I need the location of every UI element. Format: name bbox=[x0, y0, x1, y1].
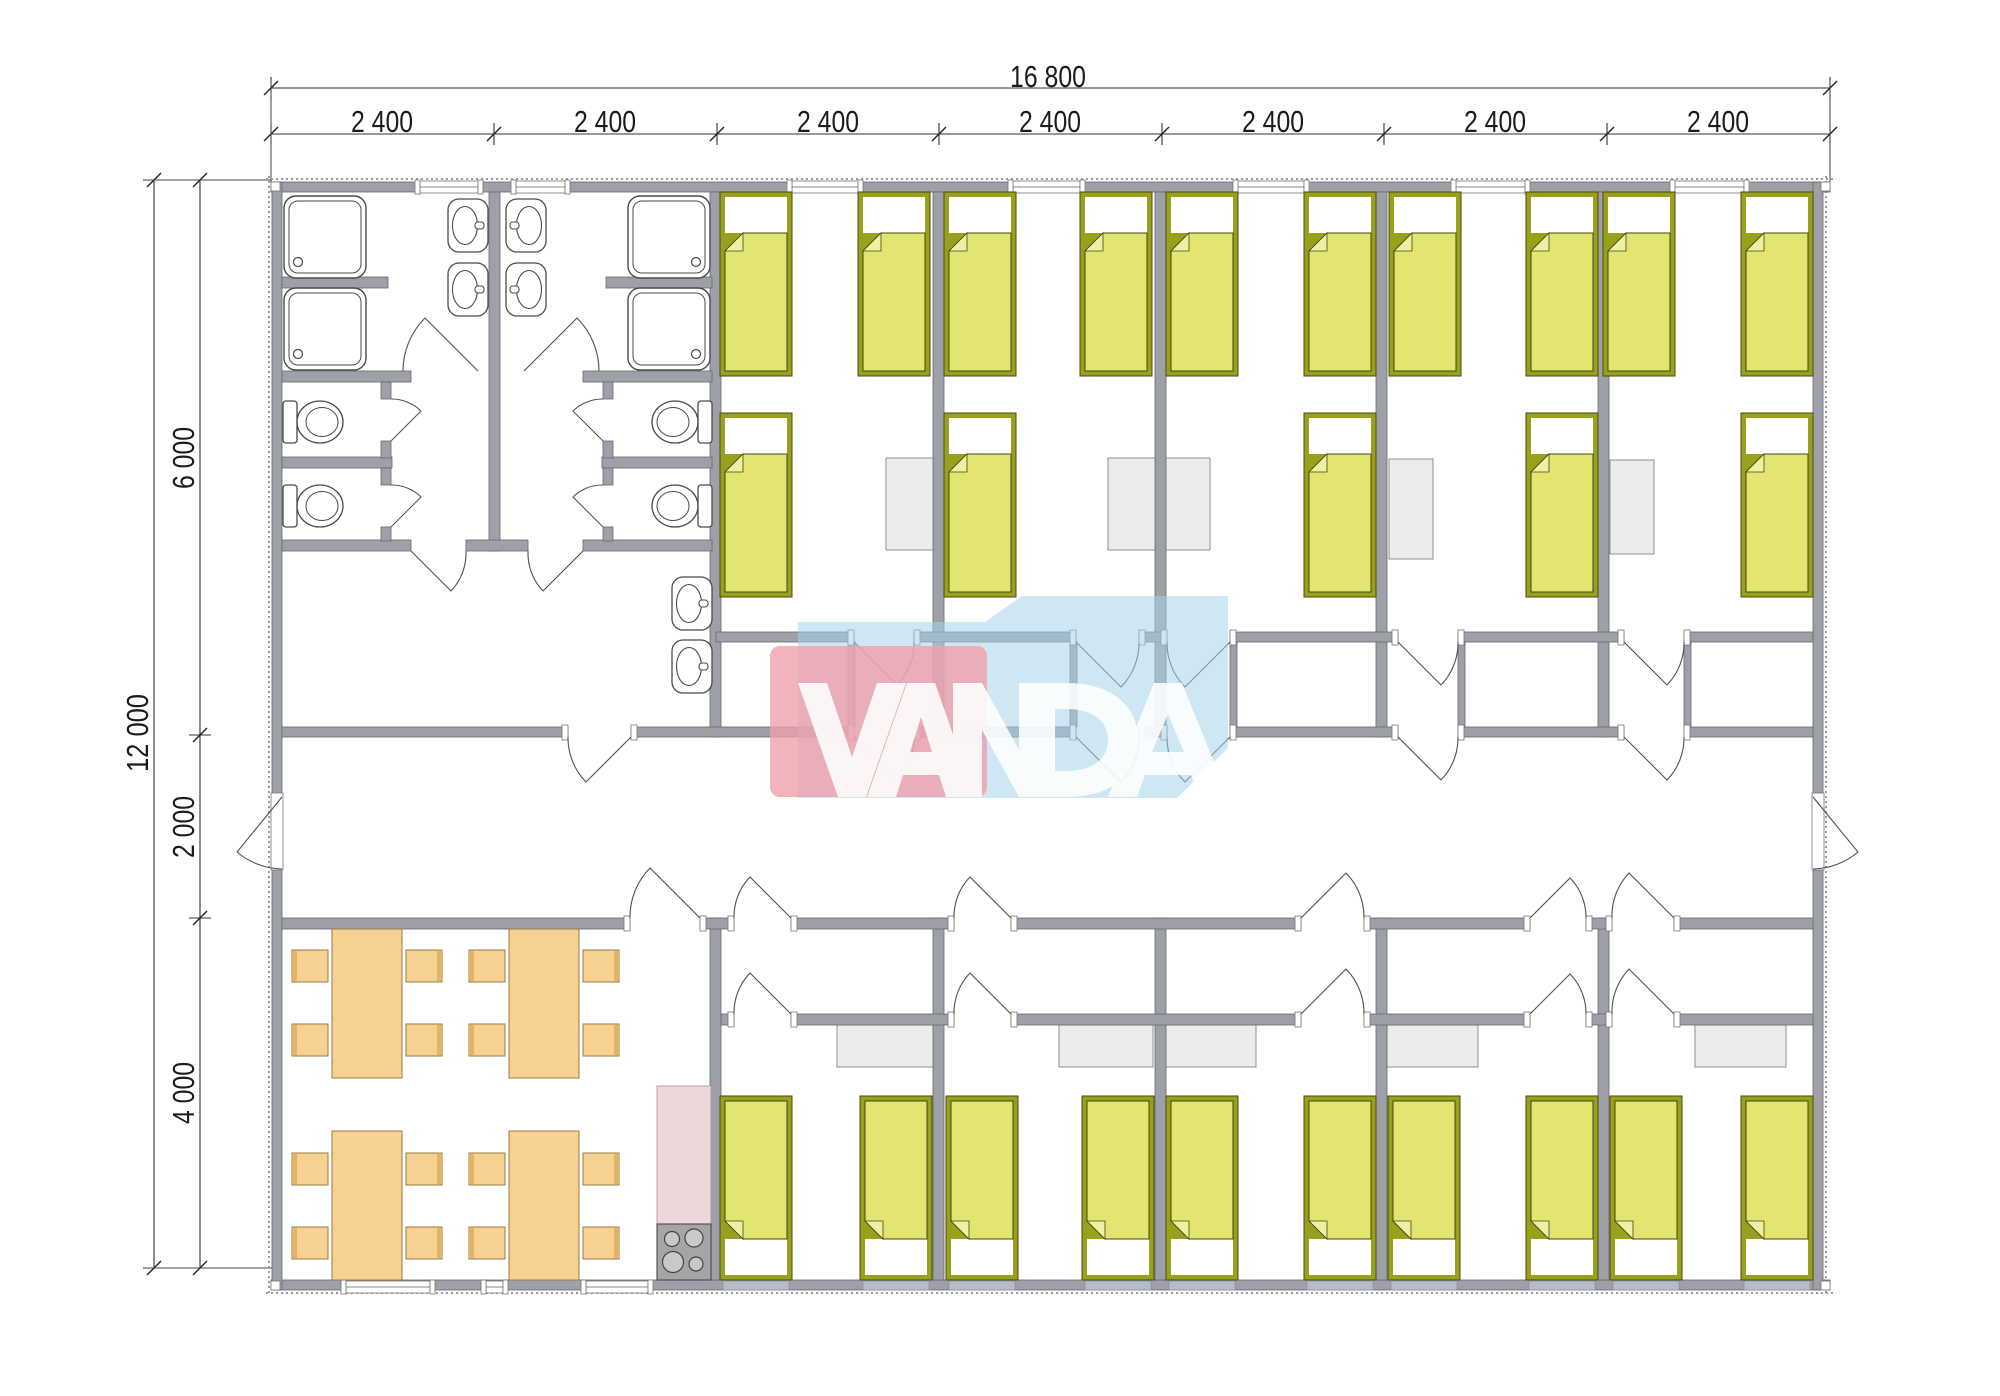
svg-text:16 800: 16 800 bbox=[1010, 59, 1086, 94]
svg-text:2 400: 2 400 bbox=[797, 104, 859, 139]
svg-text:2 400: 2 400 bbox=[1687, 104, 1749, 139]
svg-text:2 400: 2 400 bbox=[574, 104, 636, 139]
svg-text:2 000: 2 000 bbox=[166, 796, 201, 858]
svg-text:2 400: 2 400 bbox=[1242, 104, 1304, 139]
svg-text:4 000: 4 000 bbox=[166, 1062, 201, 1124]
svg-text:2 400: 2 400 bbox=[1464, 104, 1526, 139]
svg-text:2 400: 2 400 bbox=[351, 104, 413, 139]
svg-text:2 400: 2 400 bbox=[1019, 104, 1081, 139]
svg-text:6 000: 6 000 bbox=[166, 427, 201, 489]
svg-text:12 000: 12 000 bbox=[120, 694, 155, 772]
